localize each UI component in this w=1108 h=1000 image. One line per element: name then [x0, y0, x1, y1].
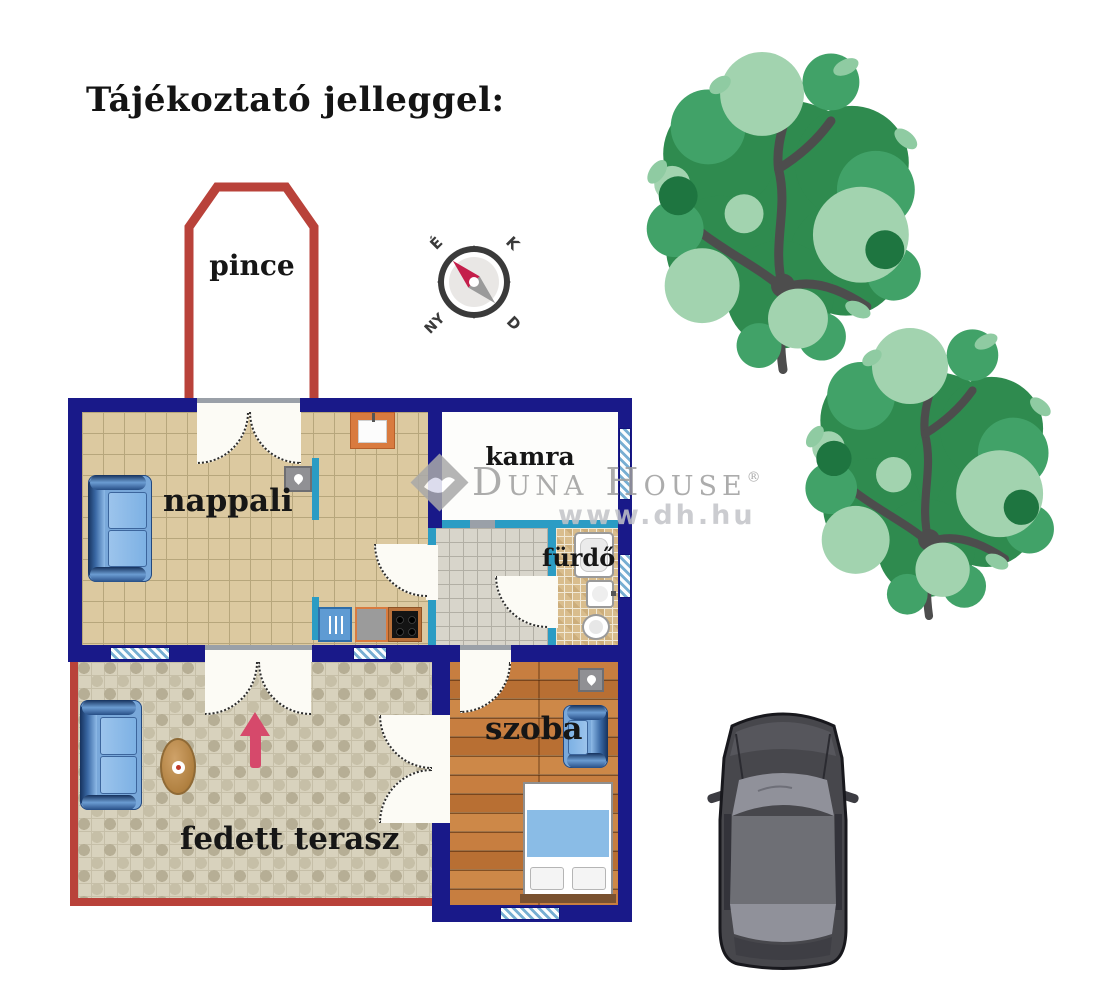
toilet-icon — [582, 614, 610, 640]
compass-label-west: NY — [424, 310, 449, 337]
door-opening-bathroom — [548, 576, 558, 628]
wall-top — [68, 398, 632, 412]
bed-blanket — [527, 810, 609, 857]
door-opening-terrace-bedroom — [432, 715, 450, 823]
sink-faucet — [372, 413, 375, 422]
floor-plan-canvas: Tájékoztató jelleggel: pince É K NY D — [0, 0, 1108, 1000]
watermark-brand: Duna House® — [472, 460, 761, 504]
sofa-cushion — [108, 492, 147, 529]
door-lintel — [205, 645, 312, 650]
duna-house-diamond-logo — [410, 450, 470, 514]
tree-icon — [793, 328, 1065, 620]
sofa-backrest — [80, 704, 97, 806]
sofa-backrest — [88, 479, 105, 578]
pince-outline — [183, 181, 320, 403]
window-right-bath — [619, 554, 631, 598]
compass-label-south: D — [503, 313, 524, 335]
sofa-icon — [80, 700, 142, 810]
bed-headboard — [520, 894, 616, 903]
window-kitchen-wall — [353, 647, 387, 660]
sink-basin — [358, 420, 387, 443]
sofa-cushion — [100, 756, 137, 794]
washbasin-faucet — [611, 591, 616, 596]
wall-left — [68, 398, 82, 662]
terrace-border-bottom — [70, 898, 432, 906]
double-bed-icon — [523, 782, 613, 903]
counter-top — [355, 607, 388, 642]
stove-surface — [392, 611, 418, 638]
stove-burners-icon — [388, 607, 422, 642]
page-title: Tájékoztató jelleggel: — [86, 80, 505, 120]
room-label-szoba: szoba — [485, 714, 583, 745]
room-label-terasz: fedett terasz — [180, 824, 390, 855]
toilet-seat — [589, 620, 603, 634]
room-label-nappali: nappali — [163, 486, 293, 517]
table-plate-dot — [176, 765, 181, 770]
sofa-armrest — [90, 567, 146, 582]
bed-pillow — [530, 867, 564, 890]
room-label-pince: pince — [196, 252, 308, 280]
arrow-stem — [250, 736, 261, 768]
car-icon — [706, 692, 860, 974]
bed-pillow — [572, 867, 606, 890]
washbasin-icon — [586, 580, 614, 608]
armchair-armrest — [567, 753, 606, 768]
door-lintel — [460, 645, 511, 650]
window-terrace-wall-left — [110, 647, 170, 660]
wall-divider-kitchen-upper — [312, 458, 319, 520]
sofa-cushion — [100, 717, 137, 755]
watermark-url: www.dh.hu — [558, 500, 756, 531]
sofa-cushion — [108, 530, 147, 567]
sofa-armrest — [90, 475, 146, 490]
watermark-brand-text: Duna House — [472, 460, 747, 504]
sofa-icon — [88, 475, 152, 582]
compass-label-north: É — [426, 233, 447, 254]
watermark-registered-mark: ® — [747, 469, 761, 485]
compass-label-east: K — [502, 233, 524, 255]
door-opening-hall — [426, 545, 438, 600]
utensils-icon — [318, 607, 352, 642]
tree-icon — [633, 52, 933, 374]
room-label-furdo: fürdő — [542, 546, 615, 570]
door-lintel — [197, 398, 300, 403]
flame-icon — [578, 668, 604, 692]
compass-rose-icon: É K NY D — [424, 226, 524, 338]
oval-table-icon — [160, 738, 196, 795]
sofa-armrest — [82, 700, 136, 715]
terrace-border-left — [70, 662, 78, 906]
entrance-arrow-icon — [240, 712, 270, 770]
arrow-head — [240, 712, 270, 736]
window-bedroom-bottom — [500, 907, 560, 920]
sofa-armrest — [82, 795, 136, 810]
kitchen-sink-icon — [350, 412, 395, 449]
watermark: Duna House® www.dh.hu — [408, 448, 728, 543]
washbasin-bowl — [592, 586, 608, 602]
